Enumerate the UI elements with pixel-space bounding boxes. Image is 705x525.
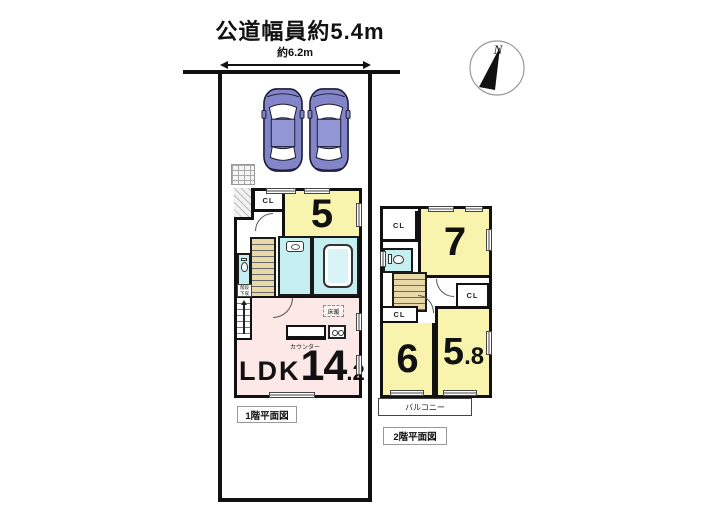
- floor2-room-6: 6: [383, 323, 435, 395]
- car-top-view-1: [261, 86, 305, 174]
- toilet-tank-icon: [388, 254, 392, 264]
- toilet-bowl-icon: [393, 255, 404, 264]
- floor2-caption: 2階平面図: [383, 427, 447, 445]
- closet-label: CL: [394, 310, 406, 319]
- lot-boundary-bottom: [218, 498, 372, 502]
- floor1-stairs: [250, 237, 276, 299]
- floor1-stairs-lower: [237, 298, 252, 340]
- road-width-title: 公道幅員約5.4m: [180, 14, 420, 46]
- floor1-room-5: 5: [282, 191, 359, 240]
- balcony: バルコニー: [378, 398, 472, 416]
- closet-label: CL: [393, 221, 405, 230]
- floor2-caption-label: 2階平面図: [393, 429, 436, 443]
- floor2-closet-c: CL: [383, 306, 418, 323]
- closet-label: CL: [467, 291, 479, 300]
- floor1-caption-label: 1階平面図: [245, 408, 288, 422]
- window: [356, 355, 362, 375]
- car-top-view-2: [307, 86, 351, 174]
- floor-heating-label: 床暖: [323, 305, 344, 317]
- window: [356, 313, 362, 331]
- entrance-porch: [234, 188, 254, 220]
- floor1-caption: 1階平面図: [237, 406, 297, 423]
- floor2-toilet: [383, 248, 413, 273]
- window: [269, 392, 315, 398]
- dimension-arrow-left-icon: [220, 61, 228, 69]
- room58-dec: .8: [464, 343, 484, 370]
- room6-size-label: 6: [396, 337, 418, 382]
- window: [380, 251, 386, 267]
- toilet-tank-icon: [241, 258, 247, 261]
- kitchen-counter: [286, 325, 326, 340]
- sink-icon: [286, 241, 304, 252]
- ldk-size-int: 14: [301, 342, 347, 390]
- window: [486, 229, 492, 251]
- window: [428, 206, 454, 212]
- floor2-closet-b: CL: [456, 283, 489, 308]
- floor1-plan: CL 5 階段下収納 カウンター: [234, 188, 362, 398]
- floorplan-page: 公道幅員約5.4m 約6.2m N CL: [0, 0, 705, 525]
- north-compass: N: [466, 36, 528, 98]
- room58-size-label: 5.8: [443, 331, 484, 374]
- ldk-size-label: LDK14.2: [239, 342, 357, 391]
- closet-label: CL: [263, 196, 275, 205]
- room7-door-arc: [436, 279, 454, 297]
- sink-basin-icon: [291, 244, 300, 250]
- bathtub-icon: [323, 244, 353, 288]
- window: [486, 331, 492, 355]
- ldk-name-label: LDK: [239, 356, 301, 386]
- toilet-bowl-icon: [241, 262, 248, 272]
- floor2-closet-a: CL: [383, 211, 418, 242]
- floor1-bathroom: [312, 236, 359, 296]
- compass-n-label: N: [493, 42, 504, 57]
- room5-size-label: 5: [311, 192, 333, 237]
- stairs-up-arrowhead-icon: [241, 300, 247, 305]
- stairs-up-arrow: [243, 304, 245, 334]
- floor1-closet: CL: [252, 191, 282, 212]
- balcony-label: バルコニー: [405, 402, 445, 413]
- dimension-arrow-right-icon: [363, 61, 371, 69]
- lot-boundary-left: [218, 70, 222, 502]
- room7-size-label: 7: [444, 220, 466, 265]
- lot-width-dimension-label: 約6.2m: [245, 44, 345, 60]
- floor1-washroom: [278, 236, 312, 296]
- window: [356, 203, 362, 227]
- lot-boundary-right: [368, 70, 372, 502]
- balcony-door: [443, 390, 477, 396]
- floor2-plan: 7 CL 5.8 CL CL 6: [380, 206, 492, 398]
- understair-storage-label: 階段下収納: [237, 284, 252, 297]
- dimension-line: [227, 64, 364, 66]
- window: [465, 206, 483, 212]
- room58-int: 5: [443, 331, 464, 373]
- entrance-door-arc: [255, 213, 273, 231]
- window: [304, 188, 330, 194]
- stove-icon: [328, 325, 346, 339]
- entrance-step-tiles: [231, 164, 255, 185]
- balcony-door: [390, 390, 424, 396]
- window: [266, 188, 296, 194]
- floor2-room-58: 5.8: [435, 306, 489, 395]
- hall2-door-arc: [418, 295, 434, 313]
- stove-burner-icon: [338, 330, 344, 336]
- floor2-room-7: 7: [418, 209, 489, 278]
